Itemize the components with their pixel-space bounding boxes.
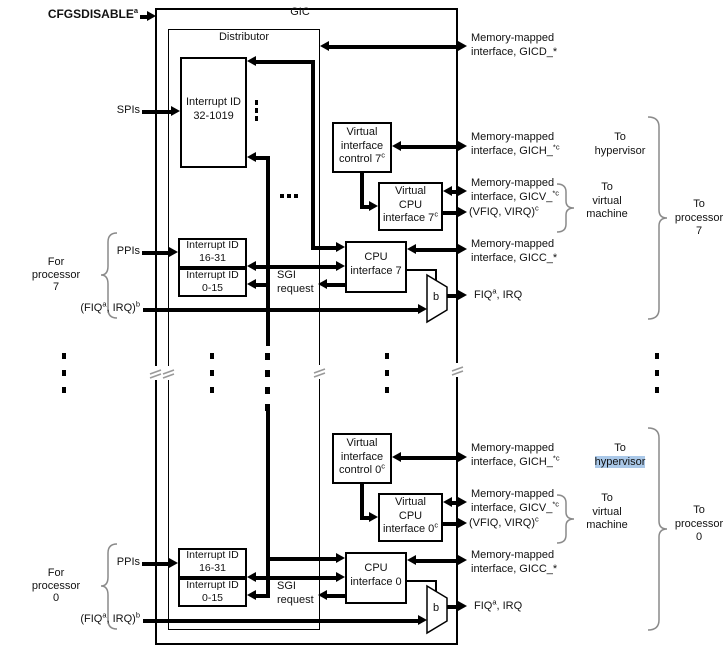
- interrupt-id-sgi-p7-label: Interrupt ID0-15: [179, 269, 246, 295]
- cpu-interface-7-label: CPUinterface 7: [346, 251, 406, 278]
- ppis-p0-arrowhead: [169, 558, 178, 568]
- sgi-p7-arrowhead-distributor: [318, 279, 327, 289]
- spi-to-cpu7-line-top: [256, 60, 313, 64]
- ppis-p7-arrowhead: [169, 247, 178, 257]
- interrupt-ellipsis-dot: [255, 108, 258, 113]
- ellipsis-dot: [62, 370, 66, 376]
- to-processor-7-label: Toprocessor7: [670, 198, 728, 239]
- ellipsis-dot: [210, 387, 214, 393]
- virtual-interface-control-0-label: Virtualinterface control 0c: [333, 437, 391, 478]
- to-virtual-machine-p7-label: Tovirtualmachine: [578, 181, 636, 222]
- gich-p0-line: [400, 456, 458, 460]
- vfiq-p7-line: [443, 211, 459, 215]
- to-hypervisor-p7-label: Tohypervisor: [585, 131, 655, 158]
- fiq-bypass-p0-line: [143, 619, 418, 623]
- ellipsis-dot-bus: [265, 387, 270, 394]
- gich-p7-arrowhead-right: [458, 141, 467, 151]
- ppi-cpu7-arrowhead-left: [247, 261, 256, 271]
- ellipsis-dot-bus: [265, 353, 270, 360]
- vic0-vcpu0-vertical: [360, 482, 364, 520]
- fiq-irq-in-p0-label: (FIQa, IRQ)b: [58, 613, 140, 627]
- vfiq-p0-line: [443, 522, 459, 526]
- for-processor-7-label: Forprocessor7: [28, 256, 84, 294]
- virtual-cpu-interface-0-label: VirtualCPU interface 0c: [379, 496, 442, 537]
- gicc-p0-label: Memory-mappedinterface, GICC_*: [471, 549, 557, 576]
- gicv-p0-arrowhead-right: [458, 497, 467, 507]
- vic7-vcpu7-arrowhead: [369, 201, 378, 211]
- gich-p7-label: Memory-mappedinterface, GICH_*c: [471, 131, 560, 158]
- gich-p0-label: Memory-mappedinterface, GICH_*c: [471, 442, 560, 469]
- ppi-cpu0-arrowhead-left: [247, 572, 256, 582]
- vfiq-p0-arrowhead: [458, 518, 467, 528]
- interrupt-id-ppi-p0-label: Interrupt ID16-31: [179, 549, 246, 575]
- cpu-interfaces-ellipsis-dot: [280, 194, 284, 198]
- break-mark-distributor-right: [312, 365, 327, 379]
- mux-b-p7-label: b: [429, 291, 443, 305]
- fiq-irq-out-p0-label: FIQa, IRQ: [474, 600, 522, 614]
- cpu-interface-0-label: CPUinterface 0: [346, 562, 406, 589]
- ppi-cpu7-arrowhead-right: [336, 261, 345, 271]
- hypervisor-selection-highlight: hypervisor: [595, 456, 646, 468]
- fiq-bypass-p7-line: [143, 308, 418, 312]
- ellipsis-dot: [210, 353, 214, 359]
- gicv-p0-label: Memory-mappedinterface, GICV_*c: [471, 488, 559, 515]
- vic0-vcpu0-arrowhead: [369, 512, 378, 522]
- gicd-arrowhead-right: [458, 41, 467, 51]
- to-virtual-machine-p0-label: Tovirtualmachine: [578, 492, 636, 533]
- vfiq-virq-p0-label: (VFIQ, VIRQ)c: [469, 517, 539, 531]
- mux7-feed-horizontal: [407, 269, 437, 271]
- spi-to-cpu7-line-bottom: [311, 246, 337, 250]
- virtual-interface-control-7-label: Virtualinterface control 7c: [333, 126, 391, 167]
- spis-line: [142, 110, 172, 114]
- fiq-irq-out-p7-label: FIQa, IRQ: [474, 289, 522, 303]
- to-processor-0-label: Toprocessor0: [670, 504, 728, 545]
- ppis-p7-label: PPIs: [100, 245, 140, 259]
- gic-architecture-diagram: GIC Distributor CFGSDISABLEa SPIs Interr…: [0, 0, 728, 652]
- spi-to-cpu7-arrowhead-right: [336, 242, 345, 252]
- gich-p7-line: [400, 145, 458, 149]
- sgi-p0-arrowhead-box: [247, 590, 256, 600]
- ellipsis-dot: [385, 353, 389, 359]
- gich-p0-arrowhead-right: [458, 452, 467, 462]
- gicd-arrowhead-left: [320, 41, 329, 51]
- cpu-interfaces-ellipsis-dot: [287, 194, 291, 198]
- gicc-p0-arrowhead-right: [458, 555, 467, 565]
- distributor-title: Distributor: [168, 31, 320, 45]
- interrupt-ellipsis-dot: [255, 116, 258, 121]
- gicv-p7-arrowhead-left: [443, 186, 452, 196]
- ellipsis-dot: [655, 387, 659, 393]
- gicv-p0-arrowhead-left: [443, 497, 452, 507]
- gich-p7-arrowhead-left: [392, 141, 401, 151]
- gicc-p0-arrowhead-left: [407, 555, 416, 565]
- ppis-p0-label: PPIs: [100, 556, 140, 570]
- gicc-p0-line: [415, 559, 459, 563]
- ellipsis-dot-bus: [265, 404, 270, 411]
- ellipsis-dot-bus: [265, 370, 270, 377]
- gic-title: GIC: [270, 6, 330, 20]
- virtual-cpu-interface-7-label: VirtualCPU interface 7c: [379, 185, 442, 226]
- bus-to-cpu0-line: [268, 557, 337, 561]
- sgi-request-p0-label: SGIrequest: [277, 580, 314, 607]
- cfgsdisable-label: CFGSDISABLEa: [34, 8, 138, 22]
- break-mark-gic-right: [450, 363, 465, 377]
- ppis-p7-line: [142, 251, 170, 255]
- cfgsdisable-arrowhead: [147, 11, 156, 21]
- interrupt-ellipsis-dot: [255, 100, 258, 105]
- ellipsis-dot: [62, 353, 66, 359]
- gicv-p7-arrowhead-right: [458, 186, 467, 196]
- ppi-cpu0-arrowhead-right: [336, 572, 345, 582]
- spi-to-cpu7-line-vertical: [311, 60, 315, 248]
- interrupt-id-sgi-p0-label: Interrupt ID0-15: [179, 579, 246, 605]
- sgi-request-p7-label: SGIrequest: [277, 269, 314, 296]
- ellipsis-dot: [210, 370, 214, 376]
- gich-p0-arrowhead-left: [392, 452, 401, 462]
- interrupt-bus-lower: [266, 410, 270, 598]
- mux-b-p0-label: b: [429, 602, 443, 616]
- vic7-vcpu7-vertical: [360, 171, 364, 209]
- sgi-p0-arrowhead-distributor: [318, 590, 327, 600]
- cpu-interfaces-ellipsis-dot: [294, 194, 298, 198]
- sgi-p7-arrowhead-box: [247, 279, 256, 289]
- interrupt-bus-top-arrowhead: [247, 152, 256, 162]
- ellipsis-dot: [385, 370, 389, 376]
- spis-label: SPIs: [100, 104, 140, 118]
- gicv-p7-label: Memory-mappedinterface, GICV_*c: [471, 177, 559, 204]
- fiq-out-p7-arrowhead: [458, 290, 467, 300]
- vfiq-p7-arrowhead: [458, 207, 467, 217]
- fiq-out-p0-arrowhead: [458, 601, 467, 611]
- sgi-p0-stub-right: [326, 594, 345, 598]
- sgi-p7-stub-left: [255, 283, 270, 287]
- gicc-p7-arrowhead-left: [407, 244, 416, 254]
- sgi-p7-stub-right: [326, 283, 345, 287]
- gicc-p7-label: Memory-mappedinterface, GICC_*: [471, 238, 557, 265]
- for-processor-0-label: Forprocessor0: [28, 567, 84, 605]
- spis-arrowhead: [171, 106, 180, 116]
- interrupt-id-spi-label: Interrupt ID32-1019: [181, 96, 246, 123]
- fiq-irq-in-p7-label: (FIQa, IRQ)b: [58, 302, 140, 316]
- sgi-p0-stub-left: [255, 594, 270, 598]
- spi-to-cpu7-arrowhead-left: [247, 56, 256, 66]
- interrupt-id-ppi-p7-label: Interrupt ID16-31: [179, 239, 246, 265]
- gicc-p7-line: [415, 248, 459, 252]
- interrupt-bus-upper: [266, 156, 270, 346]
- gicd-label: Memory-mappedinterface, GICD_*: [471, 32, 557, 59]
- break-mark-distributor-left: [161, 366, 176, 380]
- gicc-p7-arrowhead-right: [458, 244, 467, 254]
- ellipsis-dot: [385, 387, 389, 393]
- vfiq-virq-p7-label: (VFIQ, VIRQ)c: [469, 206, 539, 220]
- mux0-feed-horizontal: [407, 580, 437, 582]
- gicd-line: [328, 45, 458, 49]
- to-hypervisor-p0-label: Tohypervisor: [585, 442, 655, 469]
- bus-to-cpu0-arrowhead: [336, 553, 345, 563]
- ellipsis-dot: [655, 370, 659, 376]
- ellipsis-dot: [655, 353, 659, 359]
- ellipsis-dot: [62, 387, 66, 393]
- ppis-p0-line: [142, 562, 170, 566]
